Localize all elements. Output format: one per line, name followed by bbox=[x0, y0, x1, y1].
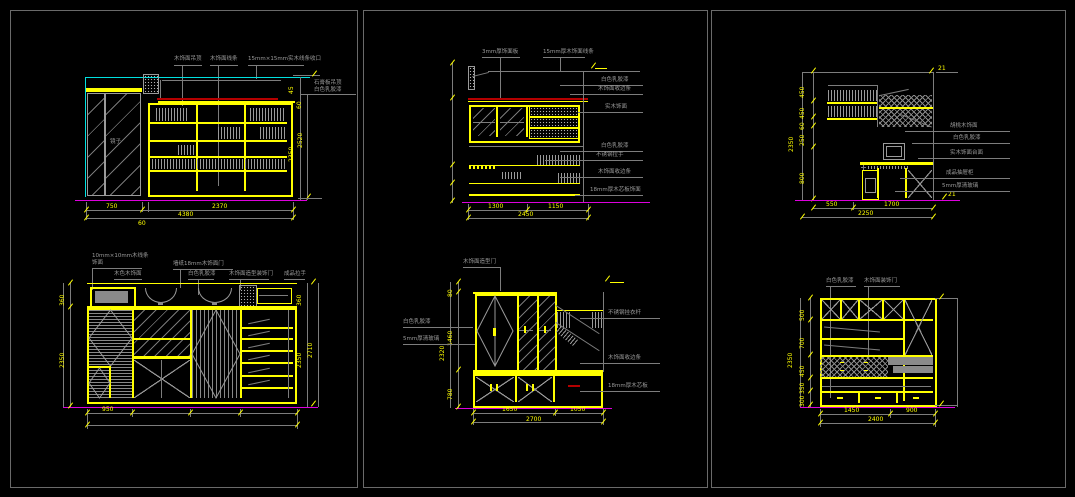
mattress-hatch bbox=[820, 357, 888, 377]
dim-label: 900 bbox=[906, 408, 917, 414]
chair bbox=[908, 170, 932, 198]
annotation: 胡桃木饰面 bbox=[950, 124, 978, 130]
line bbox=[482, 57, 520, 58]
books-hatch bbox=[558, 173, 582, 183]
shelf-line bbox=[242, 338, 293, 340]
monitor-screen bbox=[886, 146, 902, 157]
annotation: 饰面 bbox=[92, 261, 103, 267]
dim-label: 780 bbox=[448, 389, 454, 400]
door-handle bbox=[490, 384, 492, 391]
line bbox=[820, 377, 933, 379]
shelf-line bbox=[469, 183, 580, 184]
annotation: 木饰面装饰门 bbox=[864, 279, 897, 285]
line bbox=[936, 72, 958, 73]
dim-label: 2350 bbox=[297, 353, 303, 368]
line bbox=[515, 376, 517, 402]
leader-line bbox=[575, 195, 643, 196]
line bbox=[468, 101, 588, 102]
dim-label: 450 bbox=[800, 108, 806, 119]
line bbox=[173, 269, 233, 270]
line bbox=[161, 360, 162, 398]
annotation: 5mm厚清玻璃 bbox=[942, 184, 978, 190]
dim-label: 250 bbox=[800, 135, 806, 146]
books-hatch bbox=[178, 145, 195, 155]
annotation: 不锈钢挂衣杆 bbox=[608, 311, 641, 317]
shelf-line bbox=[827, 102, 878, 104]
annotation: 5mm厚清玻璃 bbox=[403, 337, 439, 343]
shelf-line bbox=[242, 362, 293, 364]
drawer-handle bbox=[837, 397, 843, 399]
dim-label: 60 bbox=[297, 101, 303, 109]
dim-label: 450 bbox=[800, 366, 806, 377]
dim-label: 60 bbox=[800, 122, 806, 130]
shelf-line bbox=[820, 338, 904, 340]
keyboard-tray bbox=[868, 166, 910, 169]
accent-line bbox=[468, 98, 588, 100]
dim-label: 2450 bbox=[518, 212, 533, 218]
line bbox=[85, 93, 86, 197]
annotation: 白色乳胶漆 bbox=[601, 78, 629, 84]
mirror-door bbox=[87, 93, 105, 196]
dim-label: 2350 bbox=[60, 353, 66, 368]
hatch-panel bbox=[529, 128, 580, 139]
cad-canvas: 木饰面吊顶 木饰面线条 15mm×15mm实木线条收口 镜子 bbox=[0, 0, 1075, 497]
line bbox=[188, 279, 214, 280]
annotation: 木饰面造型装饰门 bbox=[229, 272, 273, 278]
line bbox=[463, 267, 501, 268]
annotation: 15mm×15mm实木线条收口 bbox=[248, 57, 321, 63]
accent-mark bbox=[568, 385, 580, 387]
annotation: 木饰面收边条 bbox=[608, 356, 641, 362]
dim-label: 2350 bbox=[788, 353, 794, 368]
mark bbox=[840, 362, 844, 363]
line bbox=[174, 65, 202, 66]
line bbox=[134, 356, 190, 359]
annotation: 白色乳胶漆 bbox=[601, 144, 629, 150]
drawer-front bbox=[865, 178, 876, 193]
shelf-line bbox=[134, 338, 190, 340]
dim-line bbox=[458, 282, 459, 408]
accent-line bbox=[157, 98, 278, 100]
x-panel-tall bbox=[905, 300, 932, 355]
line bbox=[864, 286, 900, 287]
dim-label: 4380 bbox=[178, 212, 193, 218]
hatch-panel bbox=[529, 106, 580, 117]
annotation: 18mm厚木芯板 bbox=[608, 384, 648, 390]
dim-line bbox=[70, 283, 71, 407]
line bbox=[210, 65, 238, 66]
dim-label: 2370 bbox=[212, 204, 227, 210]
dim-label: 2710 bbox=[308, 343, 314, 358]
annotation: 18mm厚木芯板饰面 bbox=[590, 188, 641, 194]
dim-line bbox=[802, 217, 933, 218]
shelf-line bbox=[827, 118, 878, 120]
line bbox=[496, 107, 498, 137]
leader-line bbox=[545, 160, 643, 161]
leader-line bbox=[440, 327, 473, 328]
dim-label: 2700 bbox=[526, 417, 541, 423]
leader-line bbox=[500, 267, 501, 291]
books-hatch bbox=[502, 172, 523, 179]
dim-label: 700 bbox=[800, 338, 806, 349]
dim-label: 750 bbox=[106, 204, 117, 210]
line bbox=[403, 344, 440, 345]
line bbox=[858, 393, 860, 403]
annotation: 白色乳胶漆 bbox=[826, 279, 854, 285]
x-door bbox=[518, 377, 552, 402]
dim-label: 800 bbox=[800, 173, 806, 184]
line bbox=[284, 279, 305, 280]
x-door bbox=[476, 377, 514, 402]
dim-label: 60 bbox=[138, 221, 146, 227]
hook bbox=[212, 302, 217, 305]
line bbox=[896, 393, 898, 403]
crown-band bbox=[86, 88, 142, 92]
dim-label: 2250 bbox=[858, 211, 873, 217]
annotation: 10mm×10mm木线条 bbox=[92, 254, 149, 260]
line bbox=[877, 168, 879, 198]
dim-label: 500 bbox=[800, 310, 806, 321]
dim-line bbox=[87, 425, 297, 426]
shelf-line bbox=[242, 327, 293, 329]
dim-line bbox=[87, 413, 297, 414]
wall-line bbox=[603, 292, 604, 372]
annotation: 白色乳胶漆 bbox=[403, 320, 431, 326]
dim-line bbox=[86, 218, 293, 219]
line bbox=[288, 310, 289, 398]
dim-label: 450 bbox=[800, 87, 806, 98]
mark bbox=[864, 362, 868, 363]
dim-label: 2320 bbox=[440, 346, 446, 361]
line bbox=[526, 107, 528, 137]
line bbox=[300, 94, 356, 95]
leader-line bbox=[580, 318, 660, 319]
dim-label: 300 bbox=[800, 396, 806, 407]
dim-line bbox=[473, 413, 603, 414]
line bbox=[148, 202, 149, 212]
dim-line bbox=[318, 283, 319, 407]
line bbox=[828, 85, 877, 86]
leader-line bbox=[578, 112, 643, 113]
wall-line bbox=[933, 72, 934, 200]
annotation: 白色乳胶漆 bbox=[188, 272, 216, 278]
shelf-line bbox=[242, 350, 293, 352]
leader-line bbox=[570, 94, 643, 95]
glass-door bbox=[134, 310, 190, 356]
dim-label: 80 bbox=[448, 289, 454, 297]
floor-line bbox=[795, 200, 960, 201]
dim-label: 1450 bbox=[844, 408, 859, 414]
panel-fill bbox=[95, 291, 128, 303]
line bbox=[293, 75, 320, 76]
hook bbox=[158, 302, 163, 305]
books-hatch bbox=[592, 312, 602, 328]
annotation: 白色乳胶漆 bbox=[953, 136, 981, 142]
line bbox=[244, 105, 246, 191]
hatch-strip bbox=[469, 166, 497, 169]
x-panel bbox=[822, 300, 840, 319]
x-panel bbox=[842, 300, 858, 319]
floor-line bbox=[455, 408, 612, 409]
annotation: 墙纸18mm木饰面门 bbox=[173, 262, 224, 268]
annotation: 3mm厚饰面板 bbox=[482, 50, 518, 56]
annotation: 木饰面收边条 bbox=[598, 87, 631, 93]
dim-label: 350 bbox=[800, 383, 806, 394]
dim-label: 45 bbox=[289, 86, 295, 94]
dim-line bbox=[813, 208, 933, 209]
door-handle bbox=[544, 326, 546, 333]
annotation: 木饰面线条 bbox=[210, 57, 238, 63]
annotation: 木饰面吊顶 bbox=[174, 57, 202, 63]
annotation: 15mm厚木饰面线条 bbox=[543, 50, 594, 56]
dim-line bbox=[820, 423, 935, 424]
books-hatch bbox=[250, 108, 286, 121]
dim-label: 1650 bbox=[502, 407, 517, 413]
glass-door bbox=[517, 294, 539, 372]
desk-top bbox=[860, 162, 933, 165]
leader-line bbox=[440, 344, 475, 345]
annotation: 实木饰面台面 bbox=[950, 151, 983, 157]
door-handle bbox=[493, 328, 496, 336]
line bbox=[114, 279, 142, 280]
line bbox=[473, 122, 495, 123]
panel-fill bbox=[893, 366, 933, 373]
books-hatch bbox=[152, 159, 287, 169]
x-panel bbox=[884, 300, 903, 319]
shelf-line bbox=[469, 146, 583, 147]
dim-label: 2350 bbox=[789, 137, 795, 152]
line bbox=[822, 386, 931, 387]
leader-line bbox=[560, 177, 643, 178]
annotation: 成品抽屉柜 bbox=[946, 171, 974, 177]
annotation: 木饰面收边条 bbox=[598, 170, 631, 176]
shelf-line bbox=[879, 107, 933, 109]
ceiling-line bbox=[488, 71, 640, 72]
x-panel bbox=[860, 300, 882, 319]
door-handle bbox=[532, 384, 534, 391]
leader-line bbox=[895, 191, 1010, 192]
wall-line bbox=[583, 72, 584, 202]
line bbox=[403, 327, 440, 328]
decor-hatch bbox=[879, 95, 932, 127]
line bbox=[229, 279, 269, 280]
floor-line bbox=[800, 407, 955, 408]
base-line bbox=[469, 194, 580, 196]
diamond-pattern bbox=[89, 310, 132, 366]
dim-line bbox=[307, 94, 308, 200]
dim-label: 360 bbox=[297, 295, 303, 306]
annotation: 石膏板吊顶 bbox=[314, 81, 342, 87]
door-handle bbox=[524, 326, 526, 333]
books-hatch bbox=[260, 127, 286, 139]
annotation: 木色木饰面 bbox=[114, 272, 142, 278]
hatch-block bbox=[239, 285, 257, 307]
leader-line bbox=[560, 58, 561, 72]
dim-label: 1050 bbox=[570, 407, 585, 413]
leader-line bbox=[500, 58, 501, 100]
leader-line bbox=[580, 363, 660, 364]
annotation: 成品拉手 bbox=[284, 272, 306, 278]
line bbox=[500, 122, 524, 123]
dim-label: 360 bbox=[60, 295, 66, 306]
dim-label: 550 bbox=[826, 202, 837, 208]
leader-line bbox=[912, 143, 1010, 144]
dim-line bbox=[468, 218, 588, 219]
shelf-line bbox=[150, 140, 287, 142]
line bbox=[595, 68, 607, 69]
line bbox=[519, 330, 533, 331]
door-handle bbox=[496, 384, 498, 391]
leader-line bbox=[180, 270, 181, 288]
dim-line bbox=[813, 72, 814, 200]
line bbox=[162, 80, 281, 81]
hatch-block bbox=[143, 74, 159, 94]
dim-label: 1700 bbox=[884, 202, 899, 208]
line bbox=[553, 376, 555, 402]
glass-door bbox=[537, 294, 557, 372]
mark bbox=[840, 370, 844, 371]
dim-label: 950 bbox=[102, 407, 113, 413]
dim-label: 2520 bbox=[298, 133, 304, 148]
drawer-handle bbox=[913, 397, 919, 399]
annotation: 白色乳胶漆 bbox=[314, 88, 342, 94]
line bbox=[820, 391, 933, 393]
leader-line bbox=[182, 66, 183, 106]
line bbox=[905, 168, 907, 198]
dim-line bbox=[820, 414, 935, 415]
shelf-line bbox=[150, 156, 287, 158]
diamond-pattern bbox=[192, 310, 240, 398]
books-hatch bbox=[828, 90, 877, 101]
ceiling-line bbox=[85, 77, 310, 78]
panel-fill bbox=[888, 357, 933, 365]
leader-line bbox=[580, 391, 660, 392]
shelf-line bbox=[242, 375, 293, 377]
shelf-line bbox=[150, 122, 287, 124]
line bbox=[259, 295, 288, 296]
shelf-line bbox=[242, 387, 293, 389]
sheet-frame-left bbox=[10, 10, 358, 488]
top-shelf-box bbox=[257, 288, 292, 304]
dim-label: 2400 bbox=[868, 417, 883, 423]
wall-section bbox=[468, 66, 475, 90]
section-mark: 21 bbox=[948, 192, 956, 198]
leader-line bbox=[918, 158, 1010, 159]
books-hatch bbox=[828, 106, 877, 117]
books-hatch bbox=[156, 108, 188, 121]
hatch-panel bbox=[529, 117, 580, 128]
line bbox=[87, 283, 297, 284]
books-hatch bbox=[218, 127, 242, 139]
x-panel bbox=[134, 360, 190, 398]
leader-line bbox=[900, 178, 1010, 179]
door-label: 镜子 bbox=[110, 140, 121, 146]
diamond-pattern bbox=[89, 368, 110, 398]
dim-line bbox=[802, 72, 933, 73]
annotation: 不锈钢拉手 bbox=[596, 153, 624, 159]
dim-label: 1300 bbox=[488, 204, 503, 210]
floor-line bbox=[75, 200, 307, 201]
annotation: 实木饰面 bbox=[605, 105, 627, 111]
shelf-line bbox=[150, 170, 287, 172]
dim-line bbox=[957, 298, 958, 407]
line bbox=[92, 268, 142, 269]
line bbox=[877, 85, 878, 127]
line bbox=[543, 57, 585, 58]
dim-label: 1150 bbox=[548, 204, 563, 210]
annotation: 木饰面造型门 bbox=[463, 260, 496, 266]
leader-line bbox=[905, 131, 1010, 132]
line bbox=[196, 105, 198, 191]
mark bbox=[864, 370, 868, 371]
door-handle bbox=[526, 384, 528, 391]
drawer-handle bbox=[875, 397, 881, 399]
line bbox=[610, 282, 624, 283]
dim-label: 2350 bbox=[289, 147, 295, 162]
line bbox=[298, 198, 322, 199]
line bbox=[160, 80, 161, 100]
